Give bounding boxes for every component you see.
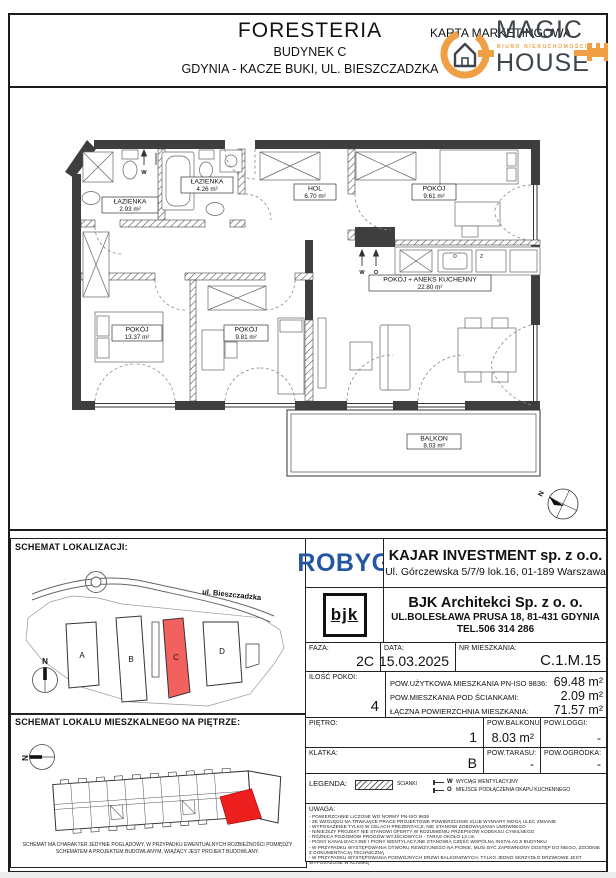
svg-text:POKÓJ: POKÓJ — [422, 184, 445, 193]
info-table: ROBYG KAJAR INVESTMENT sp. z o.o. Ul. Gó… — [305, 538, 607, 862]
pow-ogrodka-value: - — [597, 757, 601, 771]
pow-tarasu-cell: POW.TARASU: - — [483, 747, 540, 773]
faza-value: 2C — [356, 653, 374, 669]
svg-text:4.26 m²: 4.26 m² — [196, 186, 217, 193]
legend-item-o: O MIEJSCE PODŁĄCZENIA OKAPU KUCHENNEGO — [433, 787, 570, 793]
floor-plan: W W O Z ŁAZIENKA 2.93 m² ŁAZIENKA 4.26 m… — [10, 90, 606, 528]
pow-loggi-cell: POW.LOGGI: - — [540, 717, 607, 747]
dishwasher-z: Z — [480, 254, 483, 260]
svg-text:N: N — [537, 490, 545, 498]
room-label-pokoj-1337: POKÓJ 13.37 m² — [112, 325, 162, 342]
architect-info-cell: BJK Architekci Sp. z o. o. UL.BOLESŁAWA … — [383, 587, 607, 642]
nr-mieszkania-cell: NR MIESZKANIA: C.1.M.15 — [455, 642, 607, 671]
apartment-card-page: { "colors": { "wall_dark": "#3e3e3e", "a… — [0, 0, 616, 878]
schematic-caption-1: SCHEMAT MA CHARAKTER JEDYNIE POGLĄDOWY, … — [15, 842, 300, 848]
legend-cell: LEGENDA: ŚCIANKI W WYCIĄG WENTYLACYJNY O… — [305, 773, 607, 803]
north-compass-icon: N — [537, 489, 578, 519]
svg-text:8.03 m²: 8.03 m² — [423, 443, 444, 450]
pietro-cell: PIĘTRO: 1 — [305, 717, 483, 747]
svg-text:POKÓJ + ANEKS KUCHENNY: POKÓJ + ANEKS KUCHENNY — [383, 275, 477, 284]
building-d-label: D — [219, 647, 225, 656]
pietro-value: 1 — [469, 729, 477, 745]
svg-text:N: N — [42, 657, 48, 666]
architect-address: UL.BOLESŁAWA PRUSA 18, 81-431 GDYNIA — [391, 612, 600, 623]
pow-balkonu-cell: POW.BALKONU: 8.03 m² — [483, 717, 540, 747]
svg-text:BALKON: BALKON — [420, 436, 448, 443]
pow-tarasu-value: - — [530, 757, 534, 771]
location-map-title: SCHEMAT LOKALIZACJI: — [15, 542, 128, 552]
areas-cell: POW.UŻYTKOWA MIESZKANIA PN-ISO 9836: 69.… — [385, 671, 607, 717]
robyg-logo: ROBYG — [306, 539, 383, 587]
schematic-caption-2: SCHEMATEM A PROJEKTEM BUDOWLANYM, WIĄŻĄC… — [15, 849, 300, 855]
area-row-uzytkowa: POW.UŻYTKOWA MIESZKANIA PN-ISO 9836: 69.… — [390, 675, 603, 689]
developer-name: KAJAR INVESTMENT sp. z o.o. — [389, 548, 603, 564]
floor-schematic-title: SCHEMAT LOKALU MIESZKALNEGO NA PIĘTRZE: — [15, 717, 240, 727]
svg-text:13.37 m²: 13.37 m² — [125, 334, 150, 341]
header-divider — [8, 86, 608, 88]
building-b-label: B — [128, 655, 133, 664]
schematic-compass-icon: N — [21, 745, 55, 770]
developer-logo-cell: ROBYG — [305, 538, 383, 587]
pow-ogrodka-cell: POW.OGRÓDKA: - — [540, 747, 607, 773]
room-label-lazienka-1: ŁAZIENKA 2.93 m² — [102, 197, 158, 213]
legend-label: LEGENDA: — [309, 779, 347, 788]
logo-word-magic: MAGIC — [496, 18, 588, 43]
svg-text:POKÓJ: POKÓJ — [234, 325, 257, 334]
legend-item-w: W WYCIĄG WENTYLACYJNY — [433, 779, 570, 785]
building-c-label: C — [173, 653, 179, 662]
ilosc-pokoi-cell: ILOŚĆ POKOI: 4 — [305, 671, 385, 717]
street-label: ul. Bieszczadzka — [202, 587, 263, 602]
architect-logo-cell: bjk — [305, 587, 383, 642]
map-compass-icon: N — [33, 657, 58, 693]
vent-w-bath1: W — [141, 170, 147, 176]
floor-schematic-box: SCHEMAT LOKALU MIESZKALNEGO NA PIĘTRZE: … — [10, 713, 307, 868]
site-buildings — [66, 616, 259, 702]
svg-text:ŁAZIENKA: ŁAZIENKA — [114, 199, 147, 206]
building-strip — [52, 765, 283, 839]
room-label-lazienka-2: ŁAZIENKA 4.26 m² — [181, 177, 233, 193]
room-label-living: POKÓJ + ANEKS KUCHENNY 22.80 m² — [369, 275, 491, 292]
bjk-logo: bjk — [323, 593, 367, 637]
area-row-scianki: POW.MIESZKANIA POD ŚCIANKAMI: 2.09 m² — [390, 689, 603, 703]
svg-text:22.80 m²: 22.80 m² — [418, 284, 443, 291]
vent-symbol-icon — [433, 782, 444, 783]
svg-text:9.61 m²: 9.61 m² — [423, 193, 444, 200]
klatka-cell: KLATKA: B — [305, 747, 483, 773]
svg-text:ŁAZIENKA: ŁAZIENKA — [191, 179, 224, 186]
room-label-balkon: BALKON 8.03 m² — [407, 434, 461, 450]
key-icon — [574, 42, 610, 64]
svg-text:POKÓJ: POKÓJ — [125, 325, 148, 334]
plan-divider — [8, 529, 608, 531]
pow-balkonu-value: 8.03 m² — [492, 731, 534, 745]
room-label-hol: HOL 6.70 m² — [294, 184, 336, 200]
svg-text:9.81 m²: 9.81 m² — [235, 334, 256, 341]
floor-schematic: N — [11, 729, 306, 841]
svg-text:HOL: HOL — [308, 186, 322, 193]
scianki-swatch-icon — [355, 780, 393, 790]
location-map: ul. Bieszczadzka A B C D N — [11, 552, 306, 712]
nr-mieszkania-value: C.1.M.15 — [540, 652, 601, 669]
room-label-pokoj-961: POKÓJ 9.61 m² — [412, 184, 456, 201]
svg-text:2.93 m²: 2.93 m² — [119, 206, 140, 213]
ilosc-pokoi-value: 4 — [371, 698, 379, 715]
data-value: 15.03.2025 — [379, 653, 449, 669]
magic-house-logo: MAGIC BIURO NIERUCHOMOŚCI HOUSE — [438, 16, 608, 84]
area-row-laczna: ŁĄCZNA POWIERZCHNIA MIESZKANIA: 71.57 m² — [390, 703, 603, 717]
uwaga-label: UWAGA: — [309, 806, 604, 813]
architect-phone: TEL.506 314 286 — [457, 624, 534, 635]
logo-g-house-icon — [438, 16, 496, 84]
legend-scianki: ŚCIANKI — [397, 781, 417, 787]
uwaga-line: - W PRZYPADKU WYSTĘPOWANIA PODWÓJNYCH DR… — [309, 855, 604, 865]
architect-name: BJK Architekci Sp. z o. o. — [408, 595, 582, 611]
developer-address: Ul. Górczewska 5/7/9 lok.16, 01-189 Wars… — [385, 566, 606, 578]
pow-loggi-value: - — [597, 731, 601, 745]
hood-symbol-icon — [433, 790, 444, 791]
location-map-box: SCHEMAT LOKALIZACJI: ul. Bieszczadzka A … — [10, 538, 307, 715]
room-label-pokoj-981: POKÓJ 9.81 m² — [224, 325, 268, 342]
faza-cell: FAZA: 2C — [305, 642, 380, 671]
data-cell: DATA: 15.03.2025 — [380, 642, 455, 671]
page-edge — [0, 872, 616, 878]
developer-info-cell: KAJAR INVESTMENT sp. z o.o. Ul. Górczews… — [383, 538, 607, 587]
svg-text:N: N — [21, 755, 30, 761]
klatka-value: B — [468, 755, 477, 771]
svg-text:6.70 m²: 6.70 m² — [304, 193, 325, 200]
building-a-label: A — [79, 651, 85, 660]
uwaga-line: - W PRZYPADKU WYSTĘPOWANIA OTWORU REWIZY… — [309, 845, 604, 855]
uwaga-cell: UWAGA: - POWIERZCHNIE LICZONE WG NORMY P… — [305, 803, 607, 862]
vent-w-kitchen: W — [359, 270, 365, 276]
